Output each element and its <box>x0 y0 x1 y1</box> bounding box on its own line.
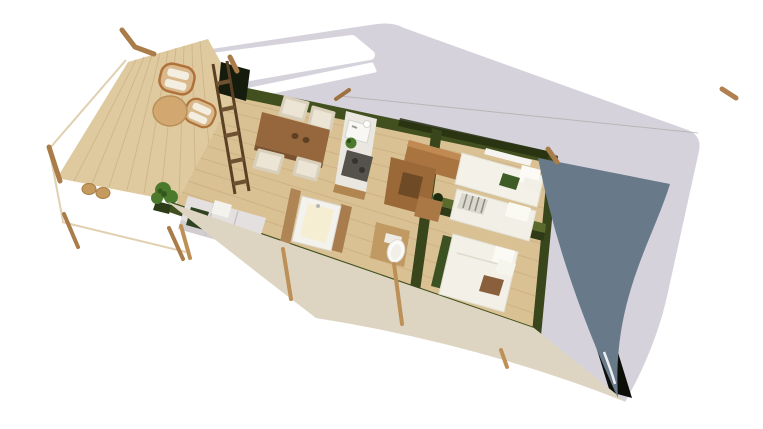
deck-railing-front <box>62 222 186 252</box>
deck-post-2 <box>64 214 78 247</box>
herb-plant <box>346 138 357 149</box>
dining-chair-3 <box>254 150 283 173</box>
tent-floorplan-render <box>0 0 763 429</box>
burner-1 <box>352 158 358 164</box>
herb-plant-shade <box>347 139 351 143</box>
tub-faucet <box>316 204 320 208</box>
pouf-2 <box>96 188 110 199</box>
table-bowl-2 <box>303 137 310 143</box>
pole-elbow-top-left <box>122 30 154 54</box>
cup <box>364 121 371 128</box>
pole-far-right <box>722 89 736 98</box>
pouf-1 <box>82 184 96 195</box>
burner-2 <box>359 167 365 173</box>
table-bowl-1 <box>292 133 299 139</box>
render-canvas <box>0 0 763 429</box>
round-side-table <box>153 96 187 126</box>
dining-chair-1 <box>280 97 308 120</box>
